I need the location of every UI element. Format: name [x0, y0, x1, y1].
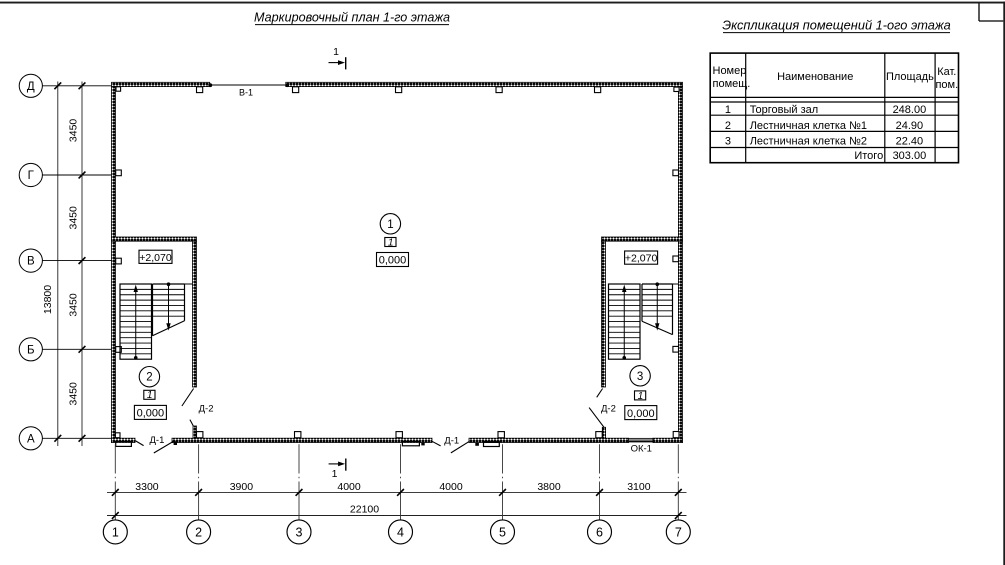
svg-text:4000: 4000 [337, 481, 361, 493]
svg-text:1: 1 [725, 104, 731, 116]
svg-text:+2,070: +2,070 [625, 253, 658, 265]
svg-text:Д-1: Д-1 [444, 436, 459, 447]
svg-text:В: В [27, 256, 35, 268]
svg-text:4: 4 [397, 525, 404, 539]
svg-text:+2,070: +2,070 [139, 252, 172, 264]
svg-text:4000: 4000 [439, 481, 463, 493]
svg-text:В-1: В-1 [239, 88, 253, 98]
svg-text:24.90: 24.90 [896, 120, 924, 132]
svg-text:Кат.: Кат. [937, 66, 956, 78]
svg-text:3450: 3450 [68, 119, 80, 143]
svg-text:Д: Д [27, 81, 35, 93]
svg-text:3100: 3100 [627, 481, 651, 493]
svg-text:22.40: 22.40 [896, 136, 924, 148]
svg-text:5: 5 [499, 525, 506, 539]
svg-text:1: 1 [147, 390, 153, 401]
svg-text:7: 7 [675, 525, 682, 539]
svg-text:22100: 22100 [350, 503, 379, 515]
svg-text:1: 1 [112, 525, 119, 539]
svg-text:Маркировочный план 1-го этажа: Маркировочный план 1-го этажа [254, 11, 450, 25]
svg-text:Г: Г [28, 170, 35, 182]
svg-text:Д-2: Д-2 [601, 404, 616, 415]
svg-text:Экспликация помещений 1-ого эт: Экспликация помещений 1-ого этажа [722, 18, 951, 33]
svg-text:помещ.: помещ. [713, 78, 751, 90]
svg-text:ОК-1: ОК-1 [631, 443, 652, 454]
svg-text:Лестничная клетка №1: Лестничная клетка №1 [750, 120, 867, 132]
svg-text:Итого: Итого [854, 150, 883, 162]
svg-text:Наименование: Наименование [777, 71, 853, 83]
svg-text:303.00: 303.00 [893, 150, 927, 162]
svg-text:3450: 3450 [68, 206, 80, 230]
svg-text:248.00: 248.00 [893, 104, 927, 116]
svg-text:3450: 3450 [68, 382, 80, 406]
svg-text:2: 2 [146, 372, 152, 384]
svg-text:Торговый зал: Торговый зал [750, 104, 819, 116]
svg-text:Площадь: Площадь [886, 71, 934, 83]
svg-text:3900: 3900 [230, 481, 254, 493]
svg-text:Д-1: Д-1 [150, 435, 165, 446]
svg-text:1: 1 [333, 46, 339, 58]
svg-text:Б: Б [27, 344, 35, 356]
svg-text:6: 6 [596, 525, 603, 539]
svg-text:0,000: 0,000 [137, 408, 165, 420]
svg-text:0,000: 0,000 [627, 408, 655, 420]
svg-text:пом.: пом. [935, 79, 958, 91]
svg-text:А: А [27, 433, 35, 445]
svg-text:2: 2 [195, 525, 202, 539]
svg-text:3: 3 [725, 136, 731, 148]
svg-text:3: 3 [637, 371, 643, 383]
svg-text:2: 2 [725, 120, 731, 132]
svg-text:Лестничная клетка №2: Лестничная клетка №2 [750, 136, 867, 148]
svg-text:1: 1 [388, 237, 394, 248]
svg-text:Номер: Номер [713, 65, 747, 77]
svg-text:3300: 3300 [135, 481, 159, 493]
svg-text:1: 1 [638, 391, 644, 402]
svg-text:1: 1 [332, 468, 338, 480]
svg-text:3450: 3450 [68, 293, 80, 317]
svg-text:0,000: 0,000 [379, 255, 407, 267]
svg-text:3: 3 [296, 525, 303, 539]
svg-text:3800: 3800 [537, 481, 561, 493]
svg-text:13800: 13800 [42, 285, 54, 314]
svg-text:Д-2: Д-2 [199, 404, 214, 415]
svg-text:1: 1 [387, 219, 393, 231]
